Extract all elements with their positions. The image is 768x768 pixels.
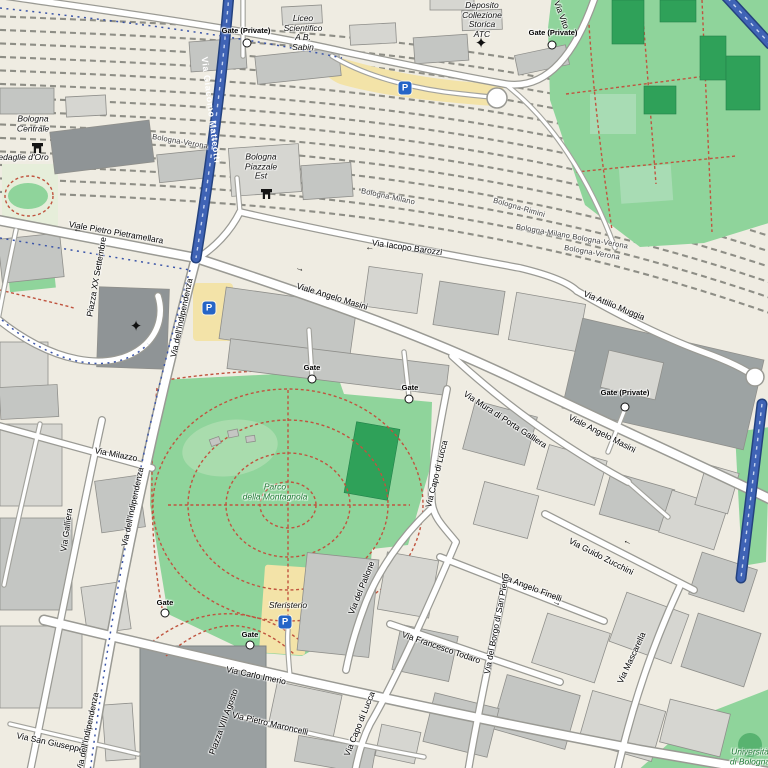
- cul-de-sac: [746, 368, 764, 386]
- map-base-layer: [0, 0, 768, 768]
- roundabout: [487, 88, 507, 108]
- map-canvas[interactable]: Viale Pietro PietramellaraVia Giacomo Ma…: [0, 0, 768, 768]
